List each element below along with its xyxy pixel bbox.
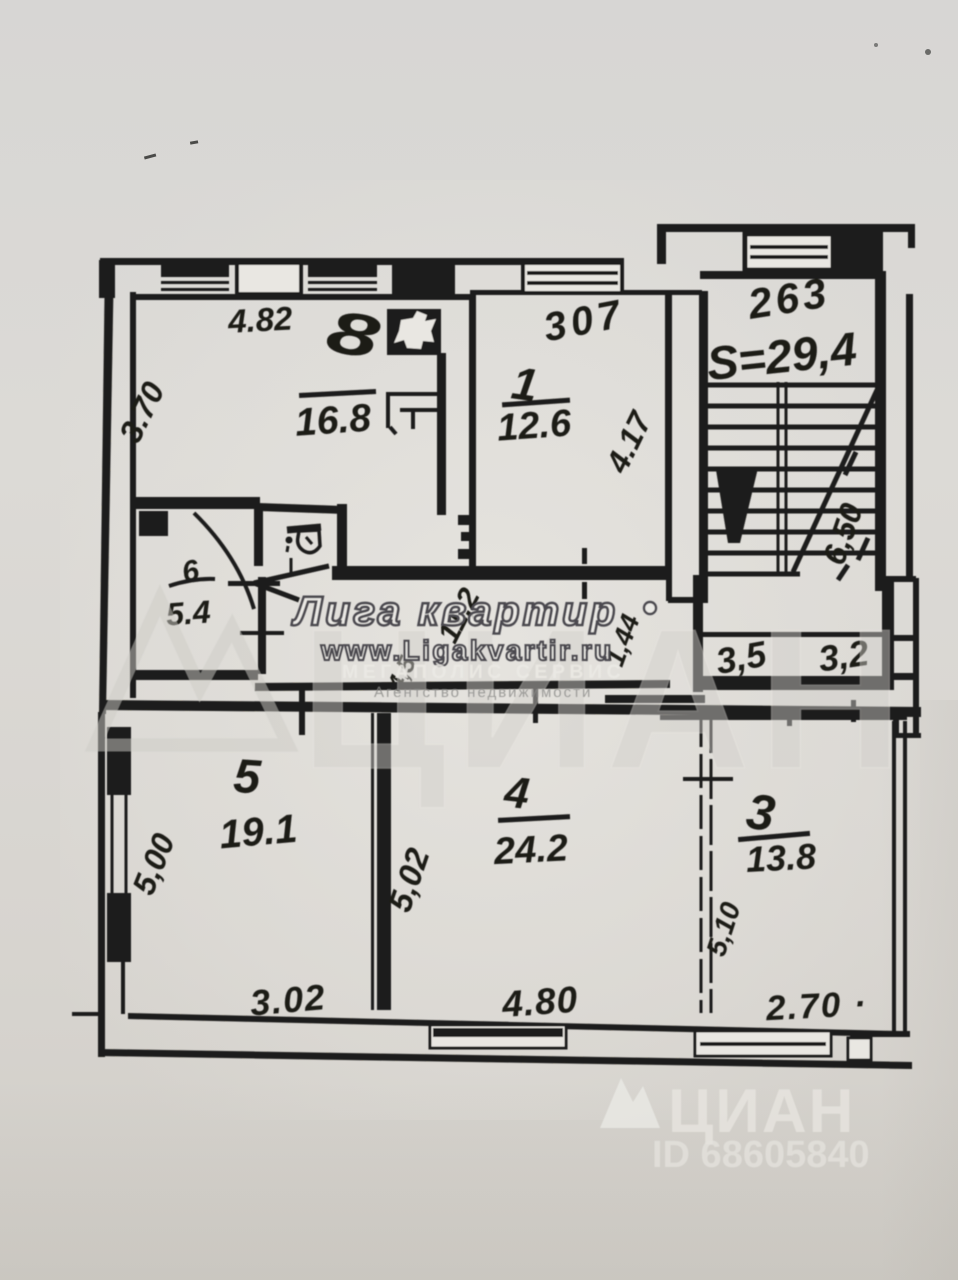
svg-text:19.1: 19.1 [218, 807, 299, 858]
svg-text:Лига квартир: Лига квартир [291, 588, 618, 634]
svg-text:3.02: 3.02 [248, 976, 327, 1023]
svg-text:12.6: 12.6 [496, 402, 574, 449]
svg-text:5: 5 [232, 750, 264, 805]
svg-text:ID 68605840: ID 68605840 [652, 1134, 870, 1176]
svg-text:МЕГАПОЛИС СЕРВИС: МЕГАПОЛИС СЕРВИС [342, 661, 625, 683]
svg-text:24.2: 24.2 [492, 827, 569, 873]
svg-text:2.70 ·: 2.70 · [764, 984, 868, 1028]
svg-text:4.82: 4.82 [226, 299, 294, 339]
svg-text:Агентство недвижимости: Агентство недвижимости [374, 684, 592, 701]
svg-text:13.8: 13.8 [745, 835, 817, 880]
svg-text:16.8: 16.8 [294, 397, 373, 445]
svg-text:4.80: 4.80 [500, 979, 580, 1025]
